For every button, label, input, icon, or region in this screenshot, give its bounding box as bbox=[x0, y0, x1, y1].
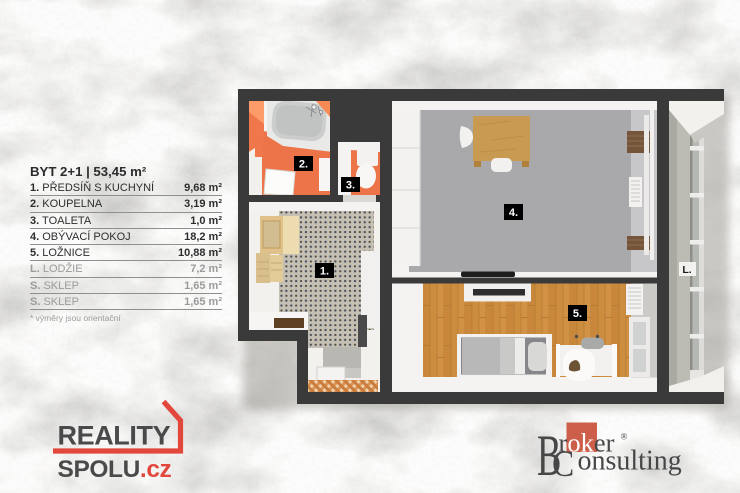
svg-text:C: C bbox=[552, 443, 574, 484]
svg-text:onsulting: onsulting bbox=[578, 446, 682, 477]
svg-text:®: ® bbox=[621, 432, 628, 442]
